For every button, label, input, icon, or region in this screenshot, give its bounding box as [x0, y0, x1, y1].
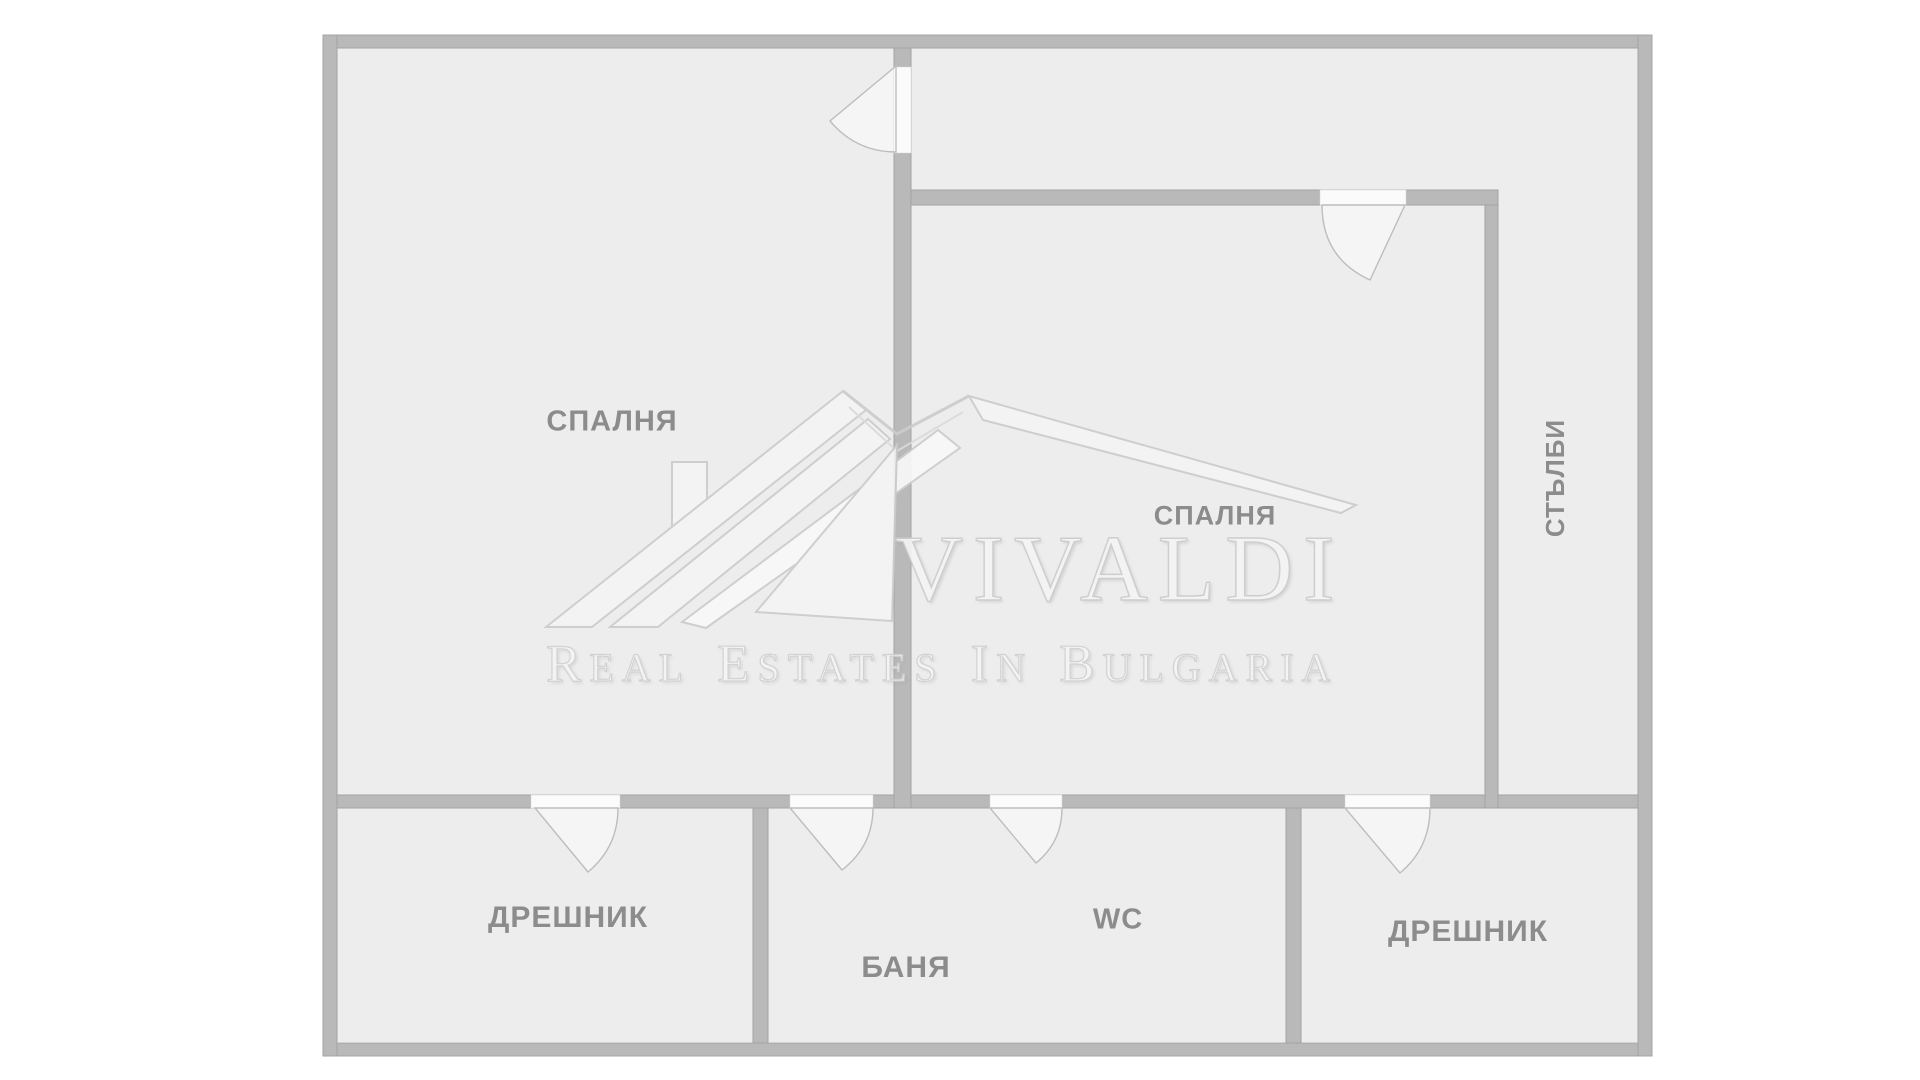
door-opening-bath-right: [990, 795, 1062, 808]
wall-closet-left-divider: [753, 808, 768, 1043]
door-opening-closet-right: [1345, 795, 1430, 808]
wall-outer-bottom: [323, 1043, 1652, 1056]
door-opening-closet-left: [531, 795, 620, 808]
wall-outer-top: [323, 35, 1652, 48]
room-label-bedroom-right: СПАЛНЯ: [1154, 503, 1277, 530]
room-label-closet-left: ДРЕШНИК: [488, 903, 648, 933]
wall-bedroom-right-side: [1485, 205, 1498, 808]
door-opening-bath-left: [790, 795, 873, 808]
wall-bedroom-right-top: [911, 190, 1498, 205]
wall-outer-left: [323, 35, 337, 1056]
floor-plan-page: VIVALDI REAL ESTATES IN BULGARIA СПАЛНЯ …: [0, 0, 1920, 1080]
room-label-bedroom-left: СПАЛНЯ: [546, 408, 677, 437]
room-label-stairs: СТЪЛБИ: [1542, 419, 1568, 537]
room-label-closet-right: ДРЕШНИК: [1388, 917, 1548, 947]
door-opening-bedroom-right: [1320, 190, 1406, 205]
room-label-wc: WC: [1093, 906, 1143, 935]
floor-plan-drawing: [0, 0, 1920, 1080]
room-label-bath: БАНЯ: [861, 953, 950, 983]
wall-closet-right-divider: [1286, 808, 1301, 1043]
wall-outer-right: [1638, 35, 1652, 1056]
wall-bedroom-divider: [894, 48, 911, 808]
